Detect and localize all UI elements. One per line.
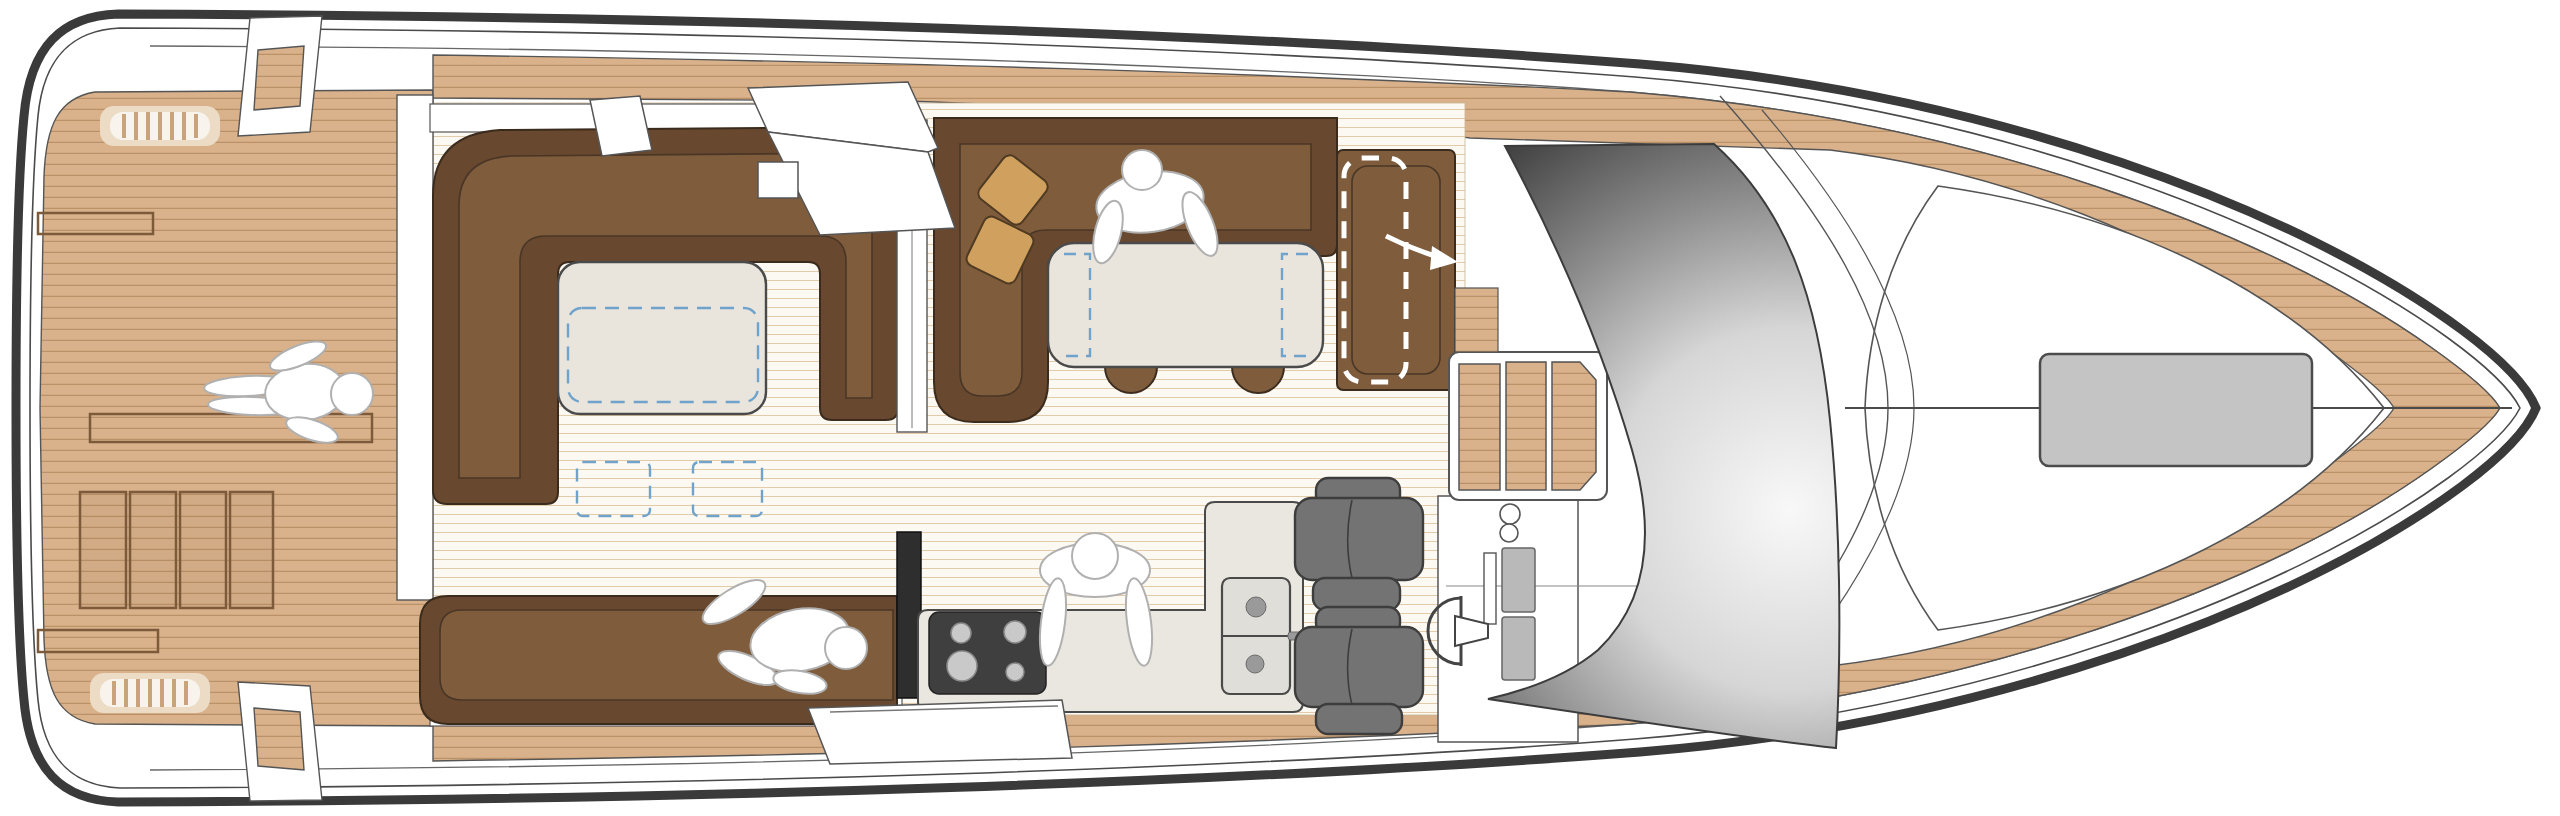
- companionway-step-3: [1552, 362, 1596, 490]
- drawer-knob-1: [1246, 597, 1266, 617]
- sunpad: [2040, 354, 2312, 466]
- gate-starboard-step: [254, 708, 304, 770]
- teak-strip-cockpit-side: [1455, 288, 1498, 352]
- engine-hatch-1: [80, 492, 126, 608]
- companionway-step-1: [1459, 364, 1500, 490]
- console-panel-bar: [1484, 553, 1496, 624]
- engine-hatch-2: [130, 492, 176, 608]
- engine-hatch-3: [180, 492, 226, 608]
- yacht-deck-plan: [0, 0, 2560, 816]
- vent-starboard: [90, 673, 210, 713]
- console-display-2: [1502, 617, 1535, 680]
- gate-port-step: [254, 46, 304, 110]
- instrument-dial-1: [1500, 504, 1520, 524]
- cooktop: [929, 612, 1046, 694]
- convertible-seat-back: [1337, 150, 1455, 390]
- hardtop-latch: [758, 162, 798, 198]
- cockpit-table: [558, 262, 766, 414]
- vent-port: [100, 106, 220, 146]
- engine-hatch-4: [230, 492, 273, 608]
- companionway-step-2: [1506, 362, 1546, 490]
- drawer-knob-2: [1246, 655, 1264, 673]
- console-display-1: [1502, 548, 1535, 612]
- cockpit-coaming-band: [397, 95, 433, 600]
- instrument-dial-2: [1500, 524, 1518, 542]
- convertible-seat: [1337, 150, 1458, 390]
